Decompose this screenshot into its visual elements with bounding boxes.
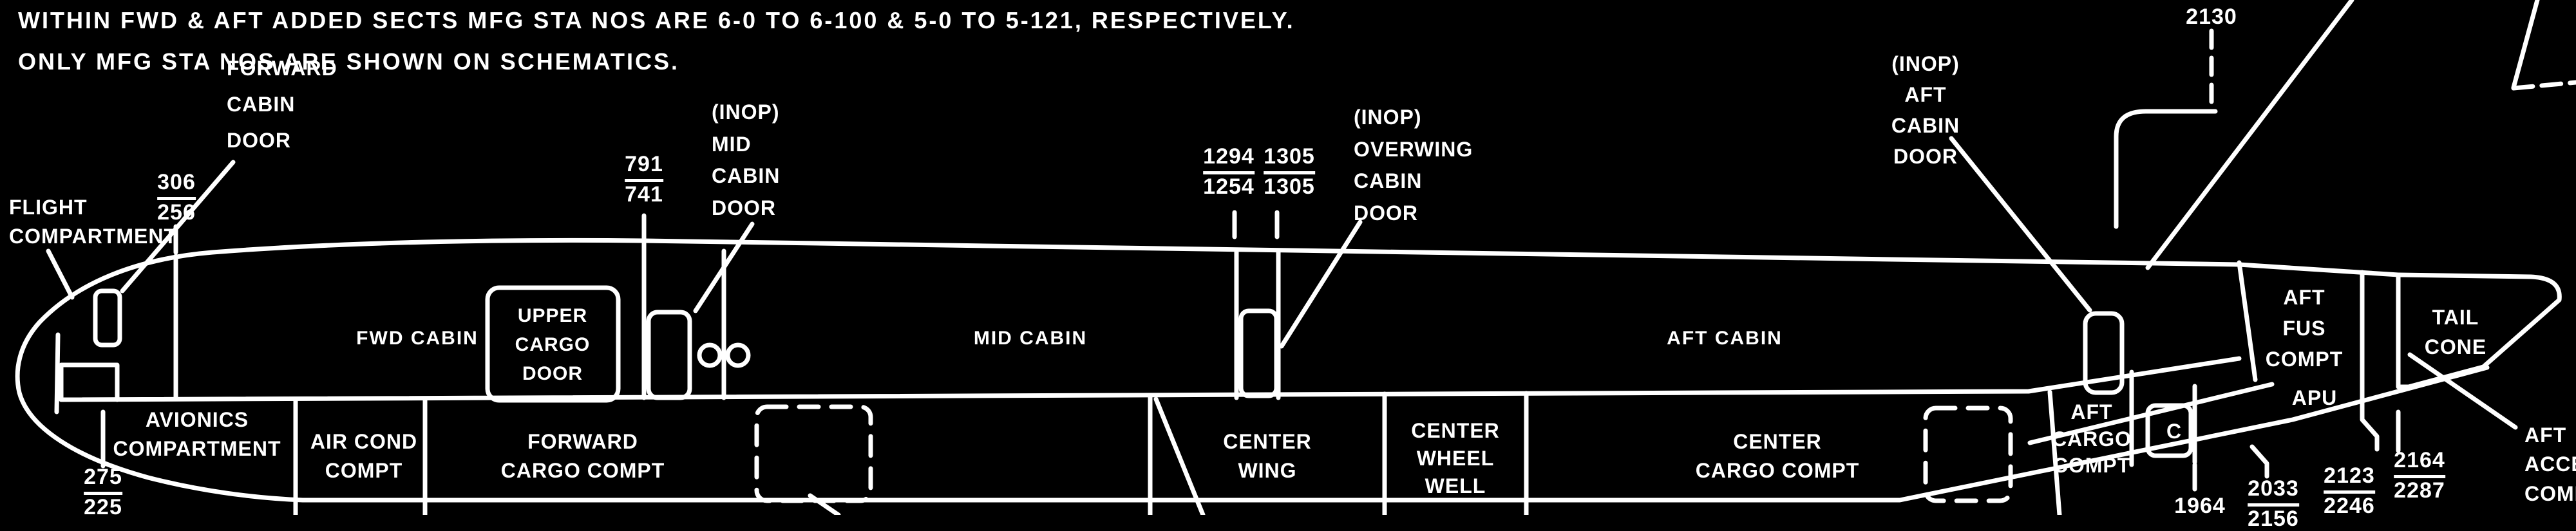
note-mfg-sta: ONLY MFG STA NOS ARE SHOWN ON SCHEMATICS… [18, 45, 679, 78]
note-added-sections: WITHIN FWD & AFT ADDED SECTS MFG STA NOS… [18, 4, 1295, 37]
center-wheel-well-label: CENTER WHEEL WELL [1411, 417, 1500, 501]
aft-cabin-label: AFT CABIN [1667, 325, 1783, 353]
avionics-compartment-label: AVIONICS COMPARTMENT [113, 405, 281, 464]
fin-leading-edge [2148, 0, 2352, 268]
tail-cone-label: TAIL CONE [2425, 303, 2486, 362]
forward-cargo-door-dashed [757, 407, 871, 501]
bulk-cargo-door-c-label: C [2166, 417, 2182, 446]
cabin-floor-line [61, 359, 2239, 400]
sta-2123-label: 21232246 [2324, 465, 2375, 517]
avionics-step [61, 365, 117, 400]
stabilizer-line [2514, 82, 2576, 88]
sta-1305-label: 13051305 [1264, 145, 1315, 198]
overwing-cabin-door-label: (INOP) OVERWING CABIN DOOR [1354, 102, 1473, 229]
mid-cabin-door-label: (INOP) MID CABIN DOOR [712, 97, 780, 224]
fuselage-station-diagram: WITHIN FWD & AFT ADDED SECTS MFG STA NOS… [0, 0, 2576, 515]
radome-line [57, 335, 58, 412]
aft-cabin-door-leader [1951, 138, 2090, 310]
mid-cabin-label: MID CABIN [974, 325, 1087, 353]
sta-2033-leader [2252, 447, 2267, 476]
fin-trailing-edge [2514, 0, 2537, 88]
sta-2123-leader [2362, 420, 2377, 449]
forward-cabin-door [95, 291, 120, 345]
fwd-cabin-label: FWD CABIN [356, 325, 478, 353]
sta-2130-label: 2130 [2186, 1, 2237, 32]
mid-cabin-door [649, 312, 690, 398]
sta-2164-label: 21642287 [2394, 449, 2445, 502]
fin-root-fairing [2116, 111, 2215, 227]
forward-cabin-door-label: FORWARD CABIN DOOR [227, 50, 337, 158]
sta-306-label: 306256 [157, 171, 196, 224]
exit-porthole-left [699, 345, 720, 366]
aft-access-compartment-label: AFT ACCESS COMPARTMENT [2524, 421, 2576, 508]
center-wing-label: CENTER WING [1223, 427, 1312, 486]
air-cond-compt-label: AIR COND COMPT [310, 427, 417, 486]
sta-275-label: 275225 [84, 466, 122, 519]
center-wing-leader [1156, 399, 1203, 515]
overwing-cabin-door-leader [1282, 222, 1360, 346]
center-cargo-compt-label: CENTER CARGO COMPT [1696, 427, 1860, 486]
sta-1964-label: 1964 [2174, 490, 2226, 521]
flight-compartment-leader [48, 251, 72, 297]
aft-cabin-door-label: (INOP) AFT CABIN DOOR [1891, 48, 1960, 172]
sta-2033-label: 20332156 [2248, 478, 2299, 530]
flight-compartment-label: FLIGHT COMPARTMENT [9, 193, 177, 252]
aft-top-line [2239, 265, 2398, 275]
upper-cargo-door-label: UPPER CARGO DOOR [515, 301, 591, 388]
exit-porthole-right [728, 345, 748, 366]
aft-access-leader [2410, 355, 2515, 427]
forward-cargo-compt-label: FORWARD CARGO COMPT [501, 427, 665, 486]
aft-fus-compt-label: AFT FUS COMPT [2266, 282, 2344, 375]
sta-1294-label: 12941254 [1203, 145, 1255, 198]
aft-bulkhead [2239, 263, 2255, 380]
apu-label: APU [2292, 384, 2338, 413]
aft-cargo-compt-label: AFT CARGO COMPT [2052, 399, 2132, 480]
overwing-cabin-door [1241, 311, 1276, 396]
sta-791-label: 791741 [625, 153, 663, 206]
